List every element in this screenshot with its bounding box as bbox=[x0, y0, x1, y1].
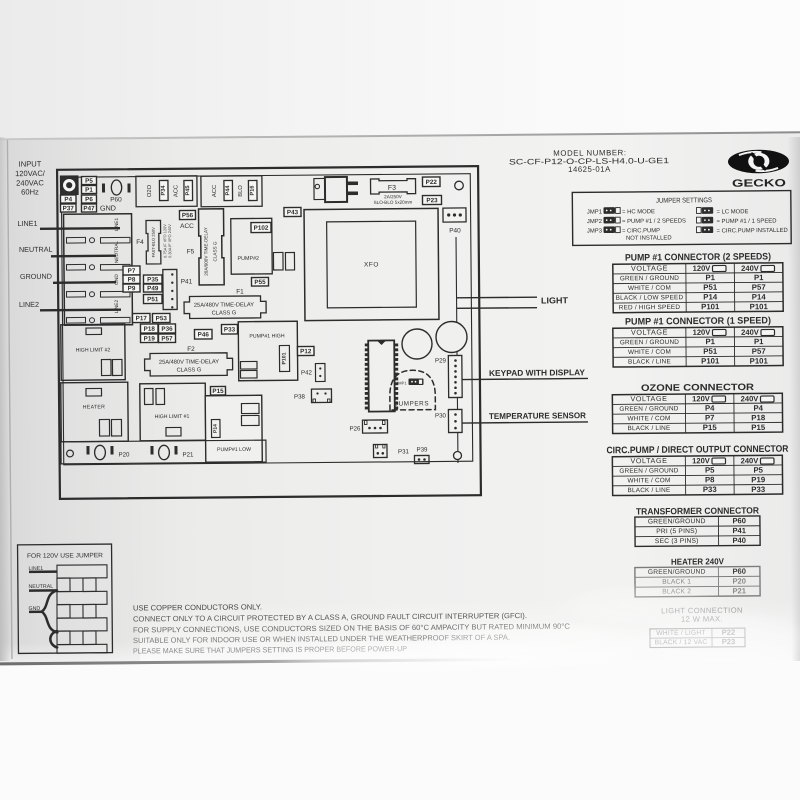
svg-text:= CIRC.PUMP INSTALLED: = CIRC.PUMP INSTALLED bbox=[716, 228, 787, 235]
svg-text:USE COPPER CONDUCTORS ONLY.: USE COPPER CONDUCTORS ONLY. bbox=[133, 602, 262, 612]
svg-text:240V: 240V bbox=[741, 394, 760, 403]
svg-text:TEMPERATURE SENSOR: TEMPERATURE SENSOR bbox=[489, 410, 586, 421]
svg-text:P53: P53 bbox=[156, 315, 168, 322]
svg-text:P7: P7 bbox=[128, 268, 136, 275]
svg-text:P42: P42 bbox=[301, 369, 313, 376]
svg-text:LINE2: LINE2 bbox=[19, 300, 39, 309]
svg-text:240V: 240V bbox=[741, 456, 760, 465]
svg-text:FOR 120V USE JUMPER: FOR 120V USE JUMPER bbox=[27, 552, 104, 560]
svg-text:CIRC.PUMP / DIRECT OUTPUT CONN: CIRC.PUMP / DIRECT OUTPUT CONNECTOR bbox=[606, 443, 788, 456]
svg-text:P33: P33 bbox=[224, 326, 236, 333]
svg-text:SEC (3 PINS): SEC (3 PINS) bbox=[655, 538, 699, 545]
svg-text:CLASS G: CLASS G bbox=[212, 310, 237, 316]
svg-text:ACC: ACC bbox=[212, 185, 218, 197]
svg-text:P6: P6 bbox=[85, 196, 93, 203]
svg-text:P47: P47 bbox=[83, 205, 95, 212]
svg-text:GECKO: GECKO bbox=[732, 177, 786, 189]
svg-text:PRI (5 PINS): PRI (5 PINS) bbox=[656, 528, 697, 535]
svg-text:P33: P33 bbox=[751, 485, 766, 494]
svg-text:TRANSFORMER CONNECTOR: TRANSFORMER CONNECTOR bbox=[636, 505, 760, 516]
svg-text:P37: P37 bbox=[63, 205, 75, 212]
svg-text:0.30A IF XFO 240V: 0.30A IF XFO 240V bbox=[167, 224, 172, 258]
svg-text:P40: P40 bbox=[732, 536, 746, 545]
svg-text:P17: P17 bbox=[136, 315, 148, 322]
svg-text:P38: P38 bbox=[294, 393, 306, 400]
svg-text:P18: P18 bbox=[144, 326, 156, 333]
svg-text:JMP1: JMP1 bbox=[396, 380, 407, 385]
svg-text:F2: F2 bbox=[187, 346, 195, 353]
svg-text:NEUTRAL: NEUTRAL bbox=[114, 240, 120, 263]
svg-text:14625-01A: 14625-01A bbox=[568, 165, 611, 174]
svg-text:P60: P60 bbox=[732, 516, 746, 525]
svg-text:P55: P55 bbox=[254, 279, 266, 286]
svg-text:P51: P51 bbox=[703, 283, 718, 292]
svg-text:P14: P14 bbox=[213, 424, 219, 433]
svg-text:BLACK / LOW SPEED: BLACK / LOW SPEED bbox=[616, 294, 684, 302]
svg-text:P14: P14 bbox=[703, 292, 718, 301]
svg-text:JMP1: JMP1 bbox=[587, 210, 602, 216]
svg-text:P23: P23 bbox=[426, 197, 438, 204]
svg-text:P33: P33 bbox=[703, 485, 718, 494]
svg-text:P101: P101 bbox=[750, 302, 769, 311]
svg-text:P45: P45 bbox=[185, 185, 191, 195]
svg-text:P49: P49 bbox=[147, 285, 159, 292]
svg-text:JMP2: JMP2 bbox=[587, 219, 602, 225]
svg-text:BLACK / LINE: BLACK / LINE bbox=[628, 358, 671, 365]
svg-text:INPUT: INPUT bbox=[19, 159, 42, 168]
svg-text:GREEN / GROUND: GREEN / GROUND bbox=[620, 339, 679, 347]
svg-text:P4: P4 bbox=[64, 196, 72, 203]
svg-text:RED / HIGH SPEED: RED / HIGH SPEED bbox=[619, 304, 681, 312]
svg-text:CLASS G: CLASS G bbox=[212, 241, 217, 261]
svg-text:P57: P57 bbox=[161, 335, 173, 342]
svg-text:GND: GND bbox=[114, 274, 120, 285]
svg-text:OZONE CONNECTOR: OZONE CONNECTOR bbox=[641, 381, 754, 393]
svg-text:LINE1: LINE1 bbox=[17, 219, 37, 228]
svg-text:P56: P56 bbox=[182, 212, 194, 219]
svg-text:25A/480V TIME-DELAY: 25A/480V TIME-DELAY bbox=[194, 302, 254, 309]
svg-text:JUMPER SETTINGS: JUMPER SETTINGS bbox=[656, 197, 712, 204]
svg-text:ACC: ACC bbox=[180, 223, 194, 230]
svg-text:CLASS G: CLASS G bbox=[177, 367, 202, 373]
svg-text:= LC MODE: = LC MODE bbox=[716, 209, 748, 215]
svg-text:GREEN/GROUND: GREEN/GROUND bbox=[648, 569, 706, 577]
svg-text:GREEN / GROUND: GREEN / GROUND bbox=[620, 275, 679, 283]
svg-text:LINE2: LINE2 bbox=[114, 299, 120, 313]
svg-text:P101: P101 bbox=[701, 356, 720, 365]
svg-text:PUMP#2: PUMP#2 bbox=[237, 256, 259, 262]
svg-text:BLACK / LINE: BLACK / LINE bbox=[628, 487, 671, 494]
svg-text:P15: P15 bbox=[212, 388, 224, 395]
svg-text:P43: P43 bbox=[287, 209, 299, 216]
svg-text:P60: P60 bbox=[732, 567, 746, 576]
svg-text:P15: P15 bbox=[751, 423, 766, 432]
svg-text:2A/250V: 2A/250V bbox=[384, 194, 403, 199]
svg-text:60Hz: 60Hz bbox=[21, 187, 39, 196]
svg-text:WHITE / COM: WHITE / COM bbox=[628, 285, 671, 292]
svg-text:PUMP#1 LOW: PUMP#1 LOW bbox=[217, 447, 251, 453]
svg-text:GREEN/GROUND: GREEN/GROUND bbox=[648, 518, 706, 526]
svg-text:P5: P5 bbox=[753, 466, 763, 475]
svg-text:P4: P4 bbox=[705, 404, 715, 413]
svg-text:HEATER: HEATER bbox=[83, 404, 106, 410]
svg-text:P101: P101 bbox=[701, 302, 720, 311]
svg-text:O2O: O2O bbox=[147, 184, 153, 197]
svg-text:LINE1: LINE1 bbox=[114, 217, 120, 231]
svg-text:P1: P1 bbox=[754, 337, 764, 346]
svg-text:JMP3: JMP3 bbox=[587, 228, 603, 234]
svg-text:120V: 120V bbox=[692, 394, 711, 403]
svg-text:P44: P44 bbox=[225, 185, 231, 196]
svg-text:P29: P29 bbox=[435, 357, 447, 364]
svg-text:120V: 120V bbox=[693, 328, 712, 337]
svg-text:WHITE / COM: WHITE / COM bbox=[628, 349, 671, 356]
svg-text:SLO-BLO 5x20mm: SLO-BLO 5x20mm bbox=[374, 200, 413, 205]
svg-text:F5: F5 bbox=[187, 248, 195, 255]
svg-text:PUMP #1 CONNECTOR (1 SPEED): PUMP #1 CONNECTOR (1 SPEED) bbox=[625, 314, 771, 326]
svg-text:P22: P22 bbox=[426, 179, 438, 186]
svg-text:120V: 120V bbox=[692, 456, 711, 465]
svg-text:P16: P16 bbox=[250, 185, 256, 195]
svg-text:P36: P36 bbox=[161, 326, 173, 333]
svg-text:P21: P21 bbox=[182, 451, 194, 458]
svg-text:P1: P1 bbox=[85, 187, 93, 194]
svg-text:P14: P14 bbox=[752, 292, 767, 301]
svg-text:= PUMP #1 / 1 SPEED: = PUMP #1 / 1 SPEED bbox=[716, 218, 776, 225]
svg-text:P12: P12 bbox=[300, 348, 312, 355]
svg-text:P7: P7 bbox=[705, 413, 715, 422]
svg-text:240VAC: 240VAC bbox=[16, 178, 44, 187]
svg-text:P57: P57 bbox=[752, 283, 766, 292]
svg-text:P1: P1 bbox=[705, 337, 715, 346]
svg-text:P101: P101 bbox=[281, 352, 287, 364]
svg-text:BLO: BLO bbox=[238, 185, 244, 197]
svg-text:F3: F3 bbox=[388, 185, 396, 192]
svg-text:P21: P21 bbox=[732, 586, 746, 595]
svg-text:XFO: XFO bbox=[364, 261, 379, 268]
svg-text:= PUMP #1 / 2 SPEEDS: = PUMP #1 / 2 SPEEDS bbox=[622, 218, 686, 225]
svg-text:P101: P101 bbox=[750, 356, 769, 365]
svg-text:P8: P8 bbox=[705, 475, 715, 484]
svg-text:LIGHT: LIGHT bbox=[541, 295, 569, 305]
svg-text:ACC: ACC bbox=[173, 185, 179, 197]
svg-text:P26: P26 bbox=[349, 425, 361, 432]
svg-text:F1: F1 bbox=[236, 288, 244, 295]
svg-text:240V: 240V bbox=[741, 328, 760, 337]
svg-text:HIGH LIMIT #1: HIGH LIMIT #1 bbox=[155, 414, 190, 420]
svg-text:P31: P31 bbox=[398, 448, 410, 455]
svg-text:VOLTAGE: VOLTAGE bbox=[631, 263, 668, 272]
svg-text:NOT INSTALLED: NOT INSTALLED bbox=[626, 235, 672, 241]
svg-text:VOLTAGE: VOLTAGE bbox=[631, 327, 668, 336]
svg-text:P15: P15 bbox=[703, 423, 718, 432]
svg-text:WHITE / COM: WHITE / COM bbox=[627, 415, 670, 422]
svg-text:P9: P9 bbox=[128, 285, 136, 292]
svg-text:VOLTAGE: VOLTAGE bbox=[630, 394, 667, 403]
svg-text:PUMP #1 CONNECTOR (2 SPEEDS): PUMP #1 CONNECTOR (2 SPEEDS) bbox=[625, 250, 771, 262]
svg-text:P41: P41 bbox=[181, 278, 193, 285]
svg-text:240V: 240V bbox=[741, 264, 760, 273]
svg-text:P57: P57 bbox=[752, 347, 766, 356]
svg-text:HIGH LIMIT #2: HIGH LIMIT #2 bbox=[76, 347, 111, 353]
svg-text:P4: P4 bbox=[753, 404, 763, 413]
svg-text:P46: P46 bbox=[198, 331, 210, 338]
svg-text:P20: P20 bbox=[732, 577, 746, 586]
svg-text:P8: P8 bbox=[128, 276, 136, 283]
svg-text:P5: P5 bbox=[85, 178, 93, 185]
svg-text:GROUND: GROUND bbox=[20, 272, 52, 281]
svg-text:P102: P102 bbox=[254, 225, 269, 232]
svg-text:HEATER 240V: HEATER 240V bbox=[671, 556, 724, 566]
svg-text:P39: P39 bbox=[416, 446, 428, 453]
svg-text:PUMP#1 HIGH: PUMP#1 HIGH bbox=[249, 333, 284, 339]
svg-text:P19: P19 bbox=[144, 335, 156, 342]
svg-text:120VAC/: 120VAC/ bbox=[15, 169, 46, 178]
svg-text:P51: P51 bbox=[147, 296, 159, 303]
svg-text:P19: P19 bbox=[751, 475, 766, 484]
svg-text:P5: P5 bbox=[705, 466, 715, 475]
svg-text:F4: F4 bbox=[136, 239, 144, 246]
svg-text:P1: P1 bbox=[705, 273, 715, 282]
svg-text:VOLTAGE: VOLTAGE bbox=[630, 456, 667, 465]
svg-text:P18: P18 bbox=[751, 413, 766, 422]
svg-text:= HC MODE: = HC MODE bbox=[622, 209, 655, 215]
svg-text:P20: P20 bbox=[118, 451, 130, 458]
svg-text:= CIRC.PUMP: = CIRC.PUMP bbox=[622, 228, 660, 234]
svg-text:P30: P30 bbox=[435, 412, 447, 419]
svg-text:GND: GND bbox=[100, 203, 116, 212]
svg-text:P40: P40 bbox=[449, 227, 461, 234]
svg-text:20A/600V TIME-DELAY: 20A/600V TIME-DELAY bbox=[203, 227, 208, 276]
svg-text:GREEN / GROUND: GREEN / GROUND bbox=[619, 405, 678, 413]
svg-text:25A/480V TIME-DELAY: 25A/480V TIME-DELAY bbox=[159, 359, 219, 366]
svg-text:P41: P41 bbox=[732, 526, 746, 535]
svg-text:NEUTRAL: NEUTRAL bbox=[28, 584, 53, 590]
svg-text:P51: P51 bbox=[703, 347, 718, 356]
svg-text:P34: P34 bbox=[161, 185, 167, 196]
svg-text:NEUTRAL: NEUTRAL bbox=[19, 245, 53, 254]
svg-text:FAST-BLO 250V: FAST-BLO 250V bbox=[151, 227, 156, 258]
svg-text:JUMPERS: JUMPERS bbox=[395, 400, 429, 407]
svg-text:GREEN / GROUND: GREEN / GROUND bbox=[619, 467, 678, 475]
svg-text:WHITE / COM: WHITE / COM bbox=[627, 477, 670, 484]
svg-text:P35: P35 bbox=[147, 276, 159, 283]
svg-text:120V: 120V bbox=[693, 264, 712, 273]
svg-text:P1: P1 bbox=[754, 273, 764, 282]
svg-text:KEYPAD WITH DISPLAY: KEYPAD WITH DISPLAY bbox=[489, 367, 586, 378]
svg-text:BLACK / LINE: BLACK / LINE bbox=[628, 425, 671, 432]
